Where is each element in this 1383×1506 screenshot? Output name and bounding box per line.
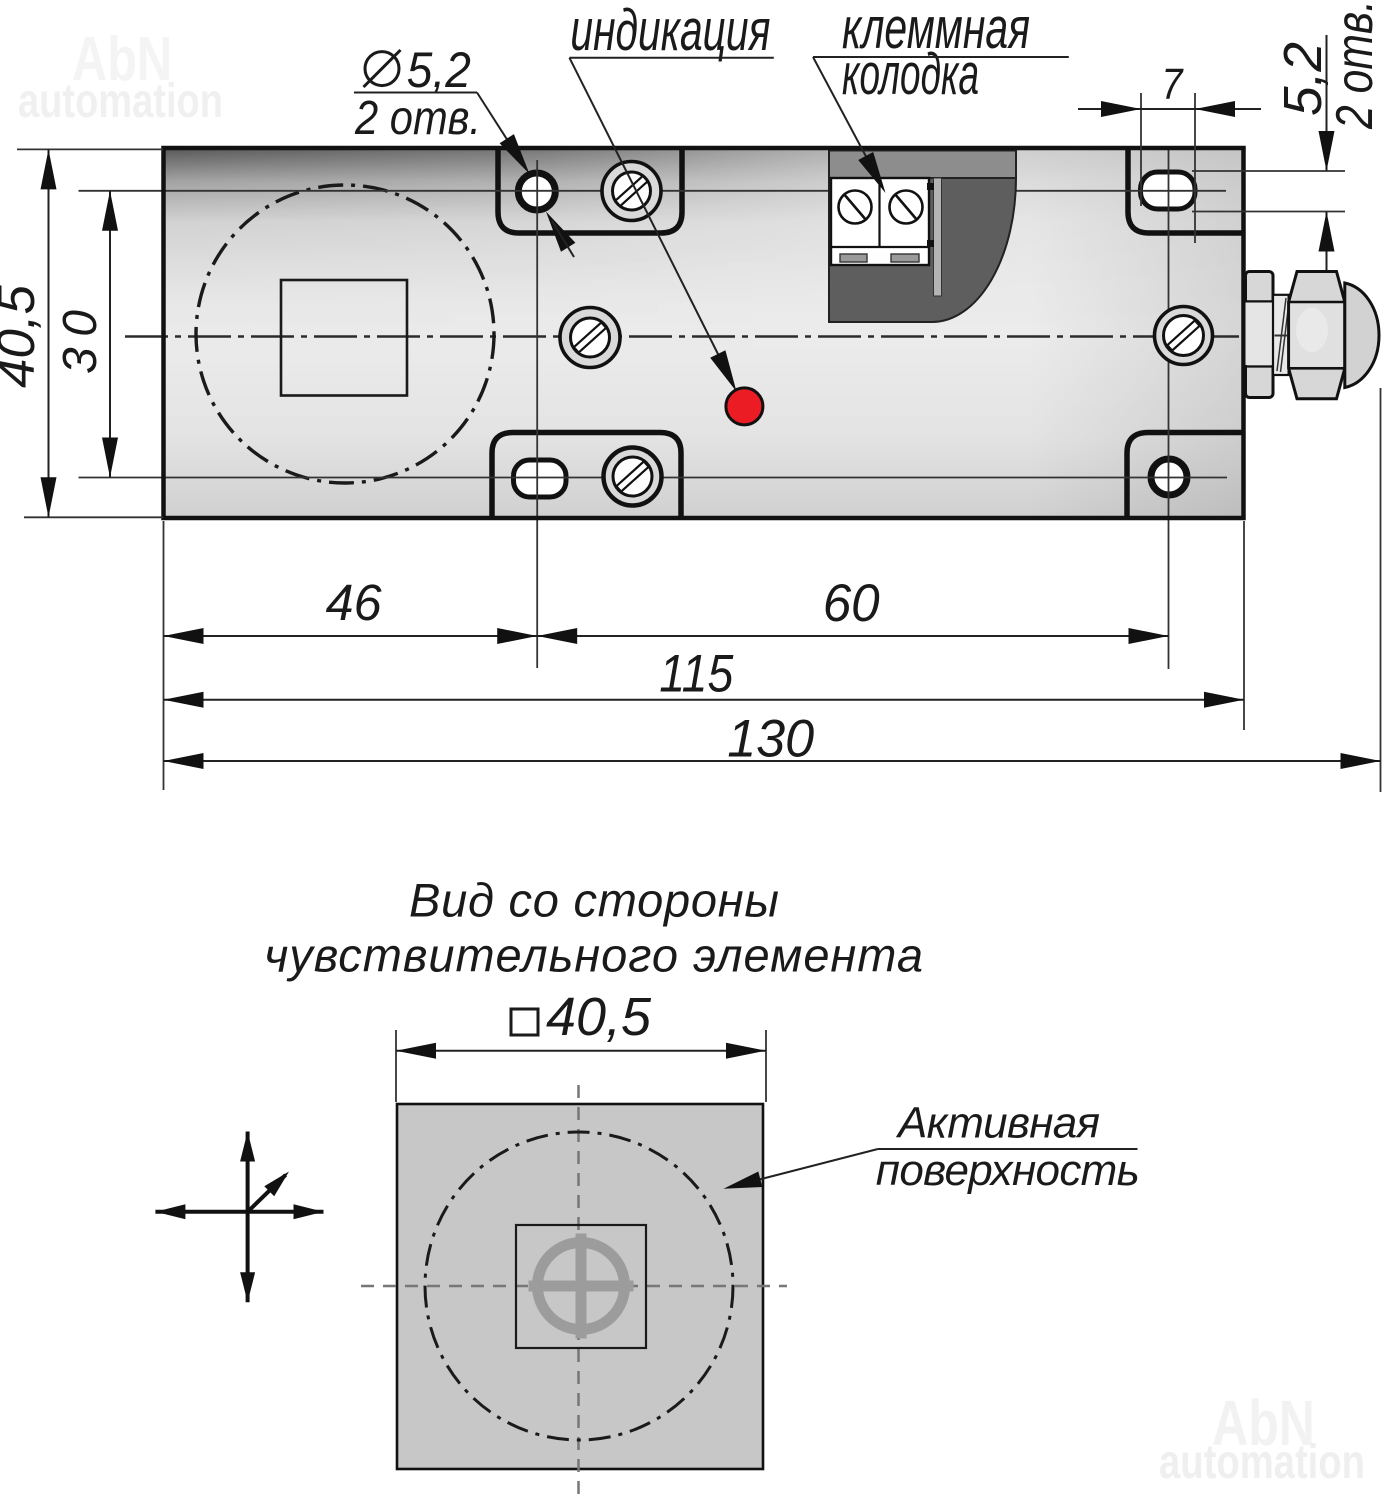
svg-text:automation: automation [1159, 1436, 1365, 1489]
svg-text:2 отв.: 2 отв. [1326, 0, 1383, 130]
svg-text:40,5: 40,5 [0, 284, 46, 388]
svg-text:115: 115 [659, 645, 734, 704]
svg-text:130: 130 [727, 710, 814, 769]
svg-text:7: 7 [1162, 60, 1184, 109]
svg-text:Активная: Активная [895, 1098, 1100, 1147]
svg-text:Вид со стороны: Вид со стороны [409, 874, 779, 927]
svg-text:2 отв.: 2 отв. [354, 92, 481, 145]
svg-text:чувствительного элемента: чувствительного элемента [264, 929, 923, 982]
svg-text:46: 46 [326, 574, 383, 631]
svg-text:60: 60 [823, 574, 880, 633]
svg-text:automation: automation [18, 75, 223, 128]
svg-text:5,2: 5,2 [1273, 42, 1333, 116]
svg-text:40,5: 40,5 [546, 987, 652, 1047]
svg-text:поверхность: поверхность [876, 1146, 1140, 1195]
svg-text:5,2: 5,2 [407, 42, 471, 98]
svg-text:колодка: колодка [842, 42, 979, 107]
svg-text:индикация: индикация [570, 0, 770, 63]
